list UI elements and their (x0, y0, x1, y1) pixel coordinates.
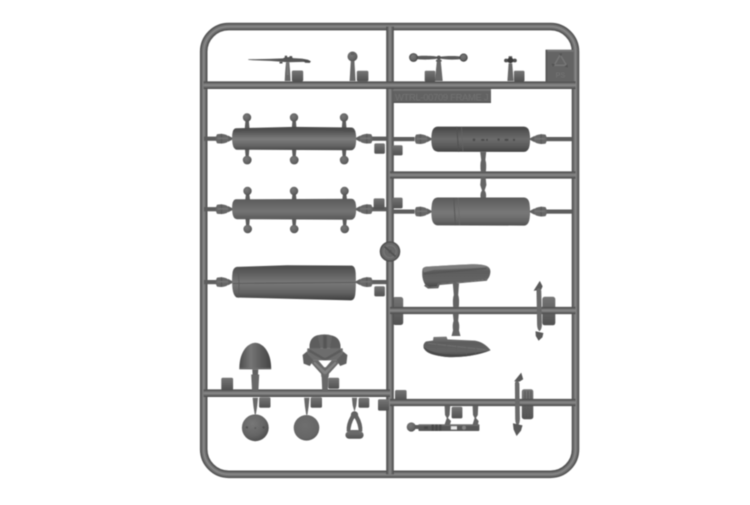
svg-text:PS: PS (556, 70, 566, 79)
svg-text:WTRL-00709 FRAME J: WTRL-00709 FRAME J (395, 91, 489, 102)
